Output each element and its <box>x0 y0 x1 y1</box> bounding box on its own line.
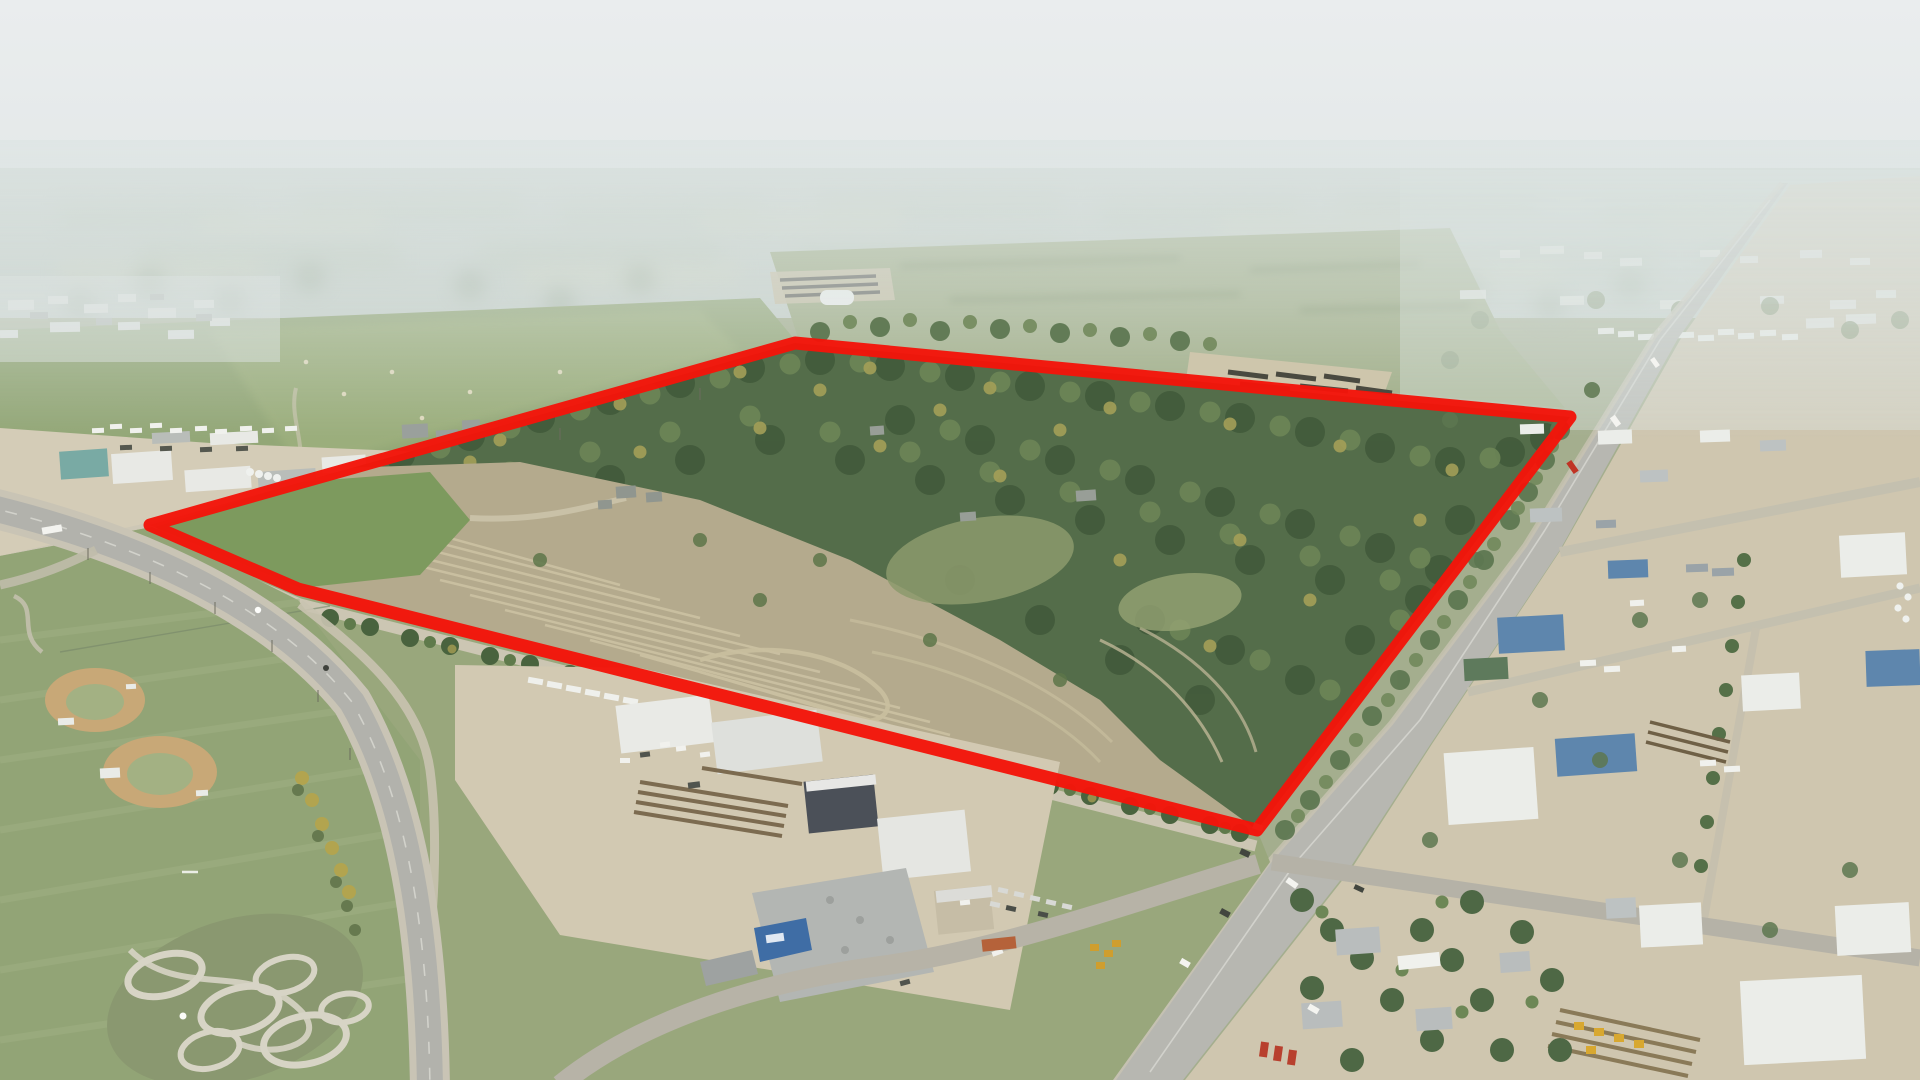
warehouse-teal-roof <box>59 448 109 479</box>
aerial-photo-frame <box>0 0 1920 1080</box>
parked-car-white <box>180 1013 187 1020</box>
building-green-roof <box>1463 657 1508 681</box>
white-building-c <box>877 810 971 881</box>
ball-diamond-2-infield <box>127 753 193 795</box>
ball-diamond-1-infield <box>66 684 124 720</box>
car-left-dark <box>323 665 329 671</box>
car-left-white <box>255 607 261 613</box>
east-haze <box>1400 170 1920 430</box>
aerial-photo <box>0 0 1920 1080</box>
